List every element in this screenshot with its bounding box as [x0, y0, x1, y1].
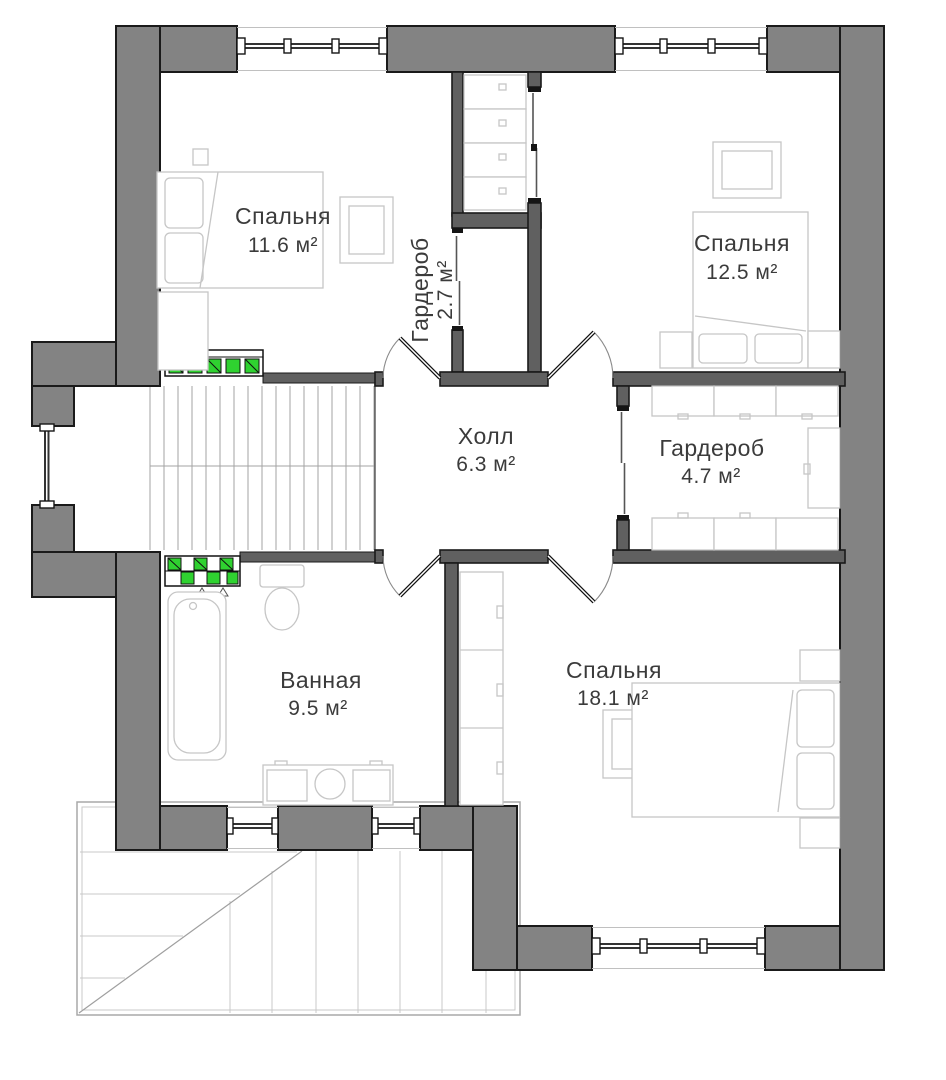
bedroom-1-furniture — [157, 149, 393, 370]
nightstand-symbol — [800, 650, 840, 681]
hall-label-area: 6.3 м² — [456, 453, 515, 476]
bathroom-label-area: 9.5 м² — [288, 697, 347, 720]
stair-upper-flight — [150, 386, 374, 466]
floor-plan-svg: Спальня 11.6 м² Гардероб 2.7 м² Спальня … — [0, 0, 946, 1080]
dresser-symbol — [158, 292, 208, 370]
wardrobe-1-label-name: Гардероб — [407, 237, 433, 342]
closet-shelves-symbol — [464, 75, 526, 210]
bathroom-label-name: Ванная — [280, 667, 362, 693]
window-bathroom-left — [227, 808, 278, 849]
window-top-left — [237, 28, 387, 71]
pillow — [797, 753, 834, 809]
cabinet-symbol — [808, 428, 840, 508]
hall-label-name: Холл — [458, 423, 514, 449]
tv-stand-symbol — [340, 197, 393, 263]
pillow — [797, 690, 834, 747]
sliding-door-closet-top — [528, 87, 541, 203]
window-bathroom-right — [372, 808, 420, 849]
nightstand-symbol — [800, 818, 840, 848]
wardrobe-2-furniture — [652, 386, 840, 550]
bathtub-symbol — [168, 592, 226, 760]
bedroom-1-label-name: Спальня — [235, 203, 331, 229]
bedroom-1-label-area: 11.6 м² — [248, 234, 318, 257]
bedroom-2-label-name: Спальня — [694, 230, 790, 256]
window-stair-landing — [40, 424, 54, 508]
bedroom-3-label-name: Спальня — [566, 657, 662, 683]
pillow — [165, 233, 203, 283]
nightstand-symbol — [660, 332, 692, 368]
pillow — [755, 334, 802, 363]
stair-lower-flight — [150, 466, 374, 550]
staircase — [150, 373, 375, 562]
door-bedroom-1 — [383, 338, 440, 378]
sliding-door-wardrobe-2 — [617, 406, 629, 520]
bedroom-3-label-area: 18.1 м² — [577, 687, 649, 710]
toilet-symbol — [265, 588, 299, 630]
stairwell-top-edge — [263, 373, 375, 383]
stair-railing-bottom — [165, 556, 240, 596]
door-bathroom — [383, 556, 440, 596]
wardrobe-2-label-name: Гардероб — [659, 435, 764, 461]
window-bottom — [592, 928, 765, 969]
toilet-tank — [260, 565, 304, 587]
pillow — [699, 334, 747, 363]
floor-plan-page: Спальня 11.6 м² Гардероб 2.7 м² Спальня … — [0, 0, 946, 1080]
stairwell-bottom-edge — [240, 552, 375, 562]
pillow — [165, 178, 203, 228]
nightstand-symbol — [193, 149, 208, 165]
door-bedroom-3 — [548, 556, 613, 602]
bedroom-2-label-area: 12.5 м² — [706, 261, 778, 284]
wardrobe-1-label-area: 2.7 м² — [434, 260, 457, 319]
wardrobe-2-label-area: 4.7 м² — [681, 465, 740, 488]
window-top-right — [615, 28, 767, 71]
nightstand-symbol — [808, 331, 840, 368]
door-bedroom-2 — [548, 332, 613, 378]
